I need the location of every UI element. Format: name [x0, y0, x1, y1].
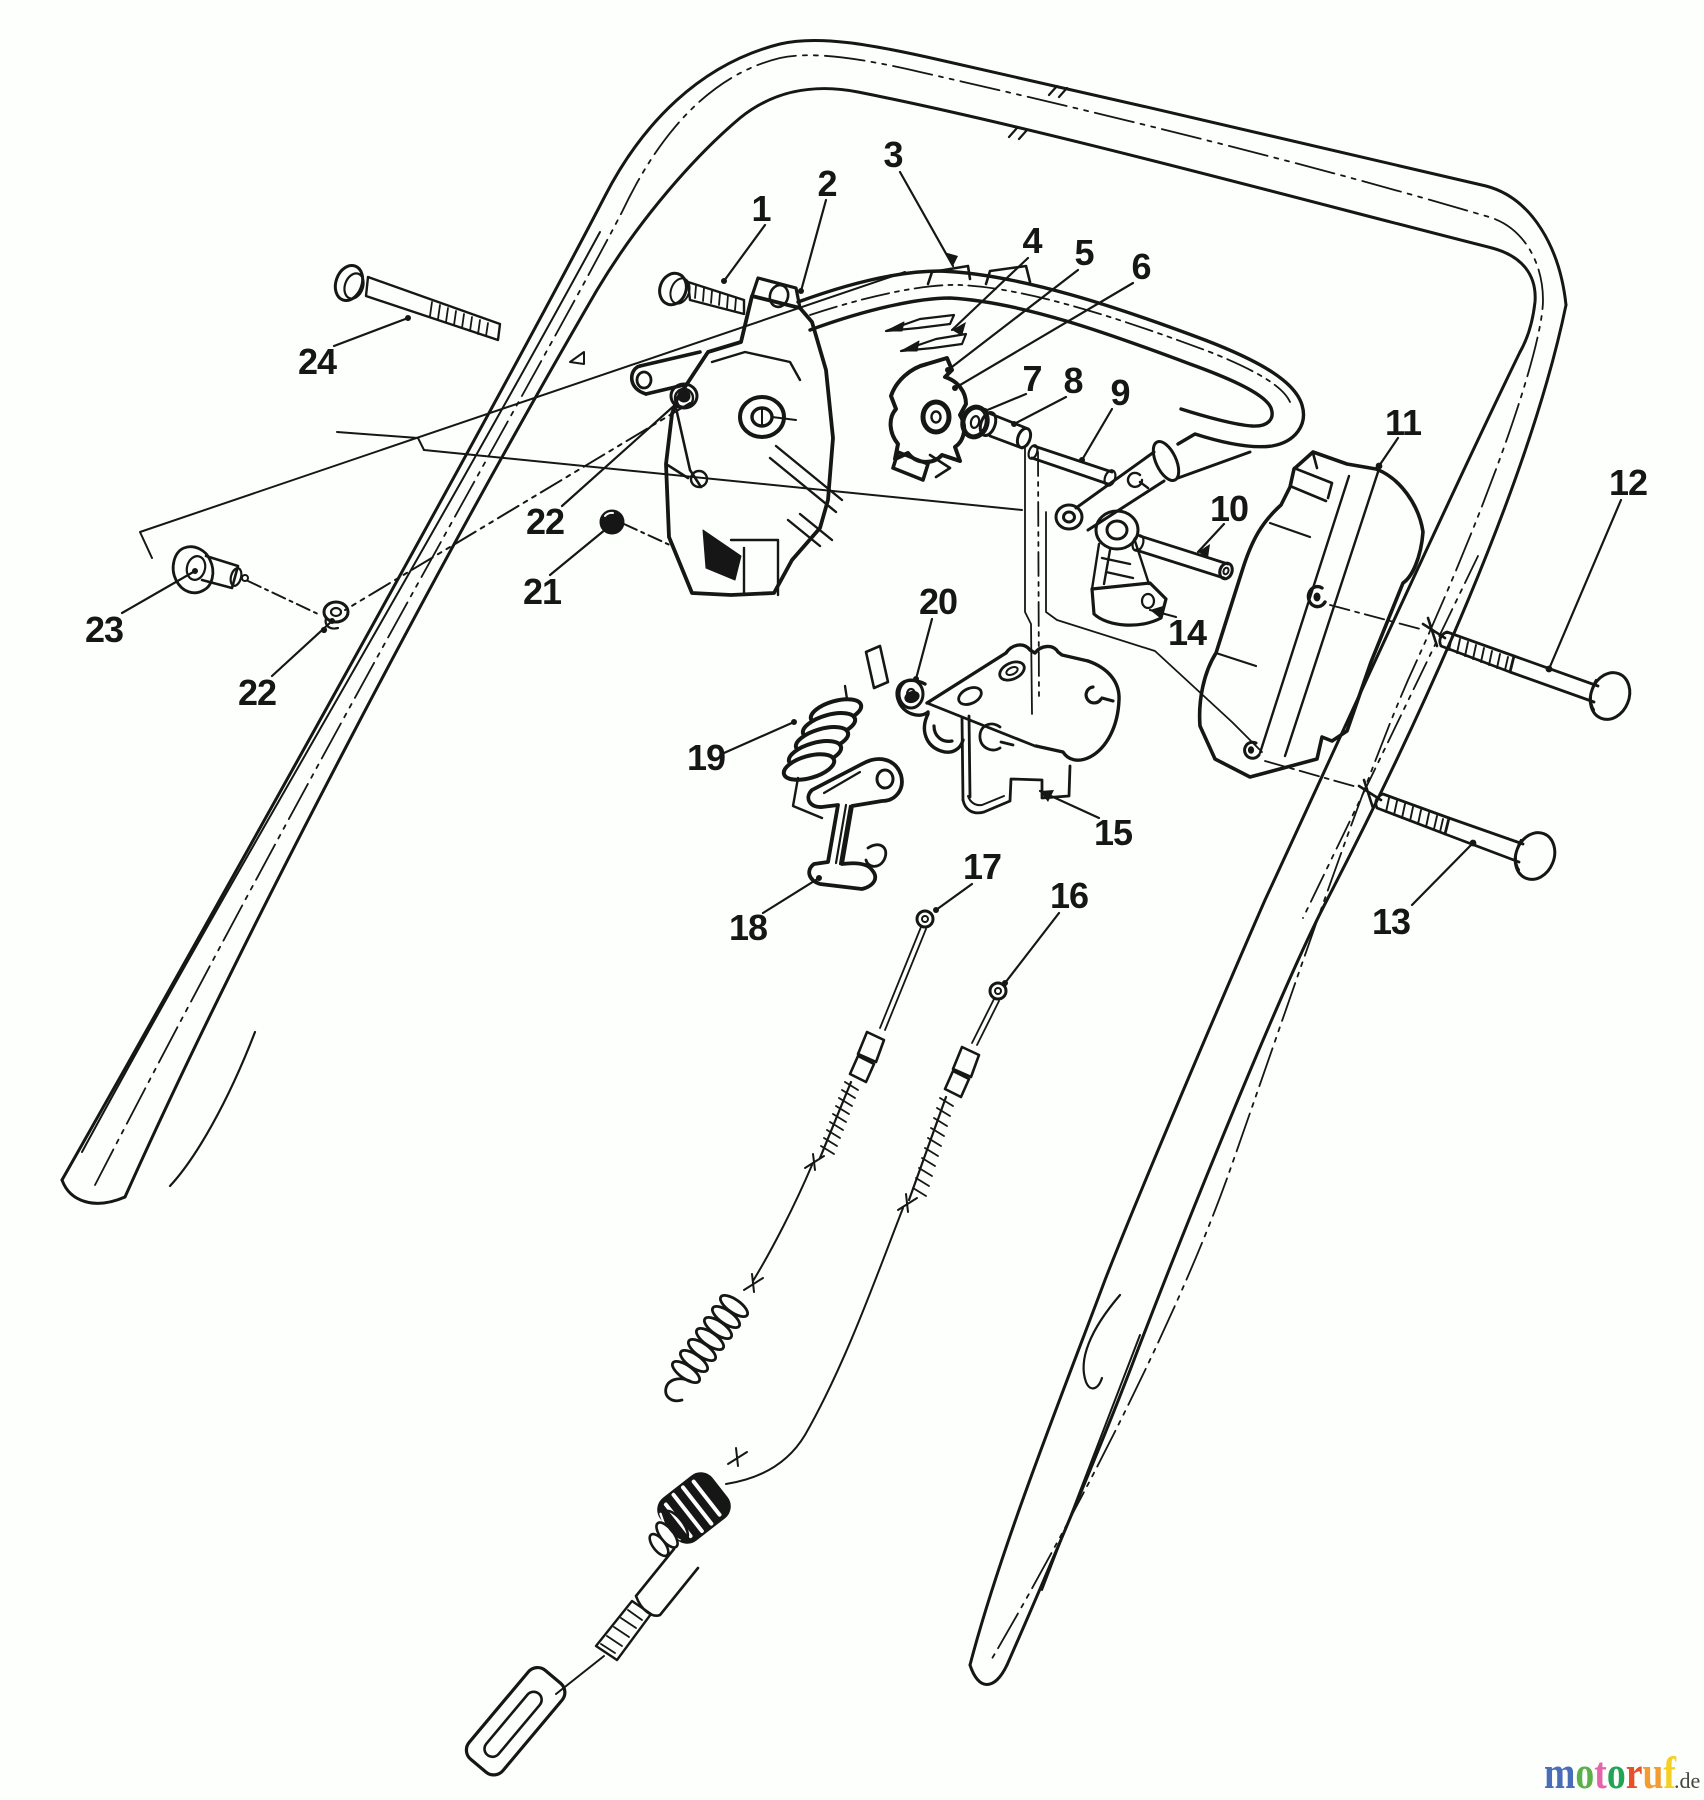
svg-text:4: 4 [1022, 220, 1042, 261]
svg-text:21: 21 [523, 571, 562, 612]
svg-text:10: 10 [1210, 488, 1248, 529]
svg-text:7: 7 [1022, 358, 1041, 399]
svg-text:8: 8 [1063, 360, 1082, 401]
svg-text:12: 12 [1609, 462, 1647, 503]
svg-text:15: 15 [1094, 812, 1133, 853]
svg-text:11: 11 [1385, 402, 1422, 443]
svg-text:1: 1 [751, 188, 771, 229]
svg-text:18: 18 [729, 907, 767, 948]
svg-text:9: 9 [1110, 372, 1129, 413]
svg-text:2: 2 [817, 163, 836, 204]
svg-text:16: 16 [1050, 875, 1088, 916]
svg-text:.de: .de [1674, 1768, 1700, 1793]
svg-text:5: 5 [1074, 232, 1094, 273]
svg-text:14: 14 [1168, 612, 1207, 653]
svg-text:22: 22 [238, 672, 276, 713]
svg-text:17: 17 [963, 846, 1001, 887]
svg-text:6: 6 [1131, 246, 1150, 287]
svg-text:24: 24 [298, 341, 337, 382]
svg-text:22: 22 [526, 501, 564, 542]
svg-text:motoruf: motoruf [1544, 1747, 1677, 1798]
svg-text:13: 13 [1372, 901, 1410, 942]
svg-text:20: 20 [919, 581, 957, 622]
svg-text:3: 3 [883, 134, 902, 175]
svg-text:23: 23 [85, 609, 123, 650]
svg-text:19: 19 [687, 737, 725, 778]
